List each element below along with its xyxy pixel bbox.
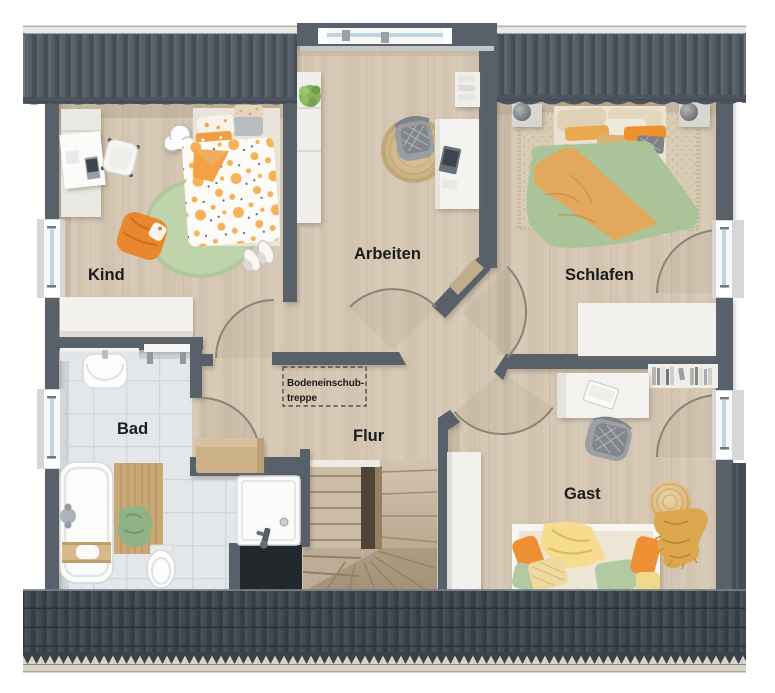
svg-text:Bodeneinschub-: Bodeneinschub- bbox=[287, 378, 364, 389]
svg-text:Arbeiten: Arbeiten bbox=[354, 245, 421, 263]
svg-text:treppe: treppe bbox=[287, 393, 318, 404]
svg-text:Gast: Gast bbox=[564, 485, 601, 503]
svg-text:Kind: Kind bbox=[88, 266, 125, 284]
svg-text:Bad: Bad bbox=[117, 420, 148, 438]
svg-text:Flur: Flur bbox=[353, 427, 385, 445]
svg-text:Schlafen: Schlafen bbox=[565, 266, 634, 284]
